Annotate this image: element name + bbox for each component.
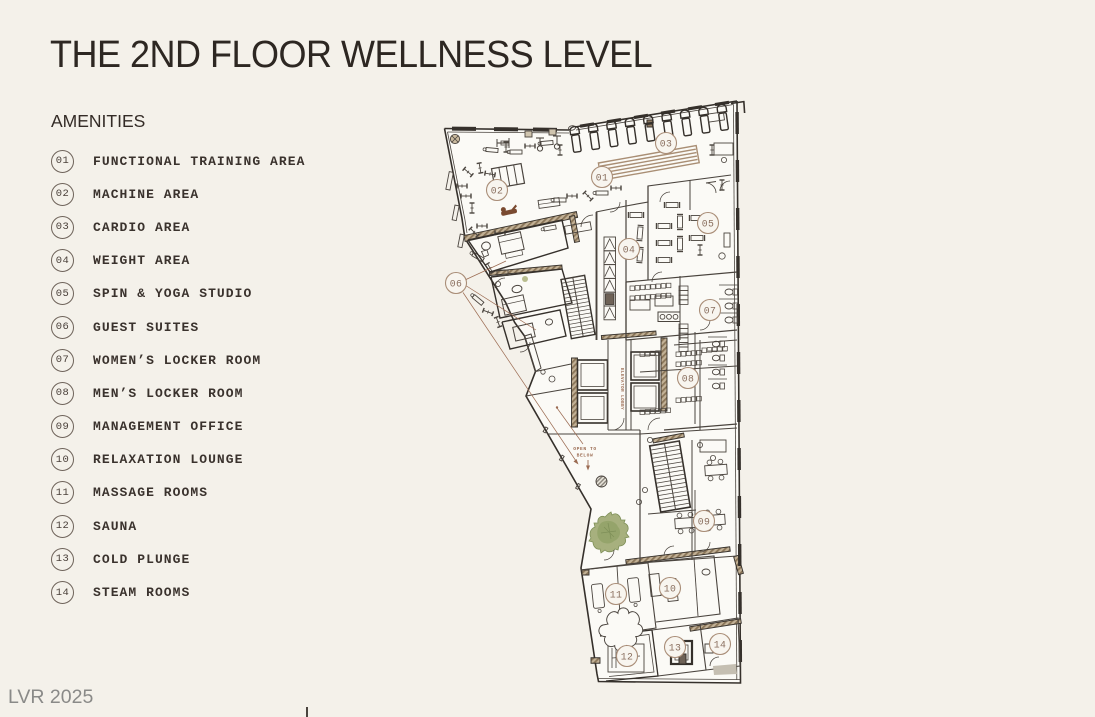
svg-text:04: 04 [623,244,636,255]
svg-text:03: 03 [660,138,673,149]
svg-text:13: 13 [669,642,682,653]
svg-text:BELOW: BELOW [577,453,594,459]
svg-text:10: 10 [664,583,677,594]
svg-text:07: 07 [704,305,717,316]
svg-text:06: 06 [450,278,463,289]
svg-text:05: 05 [702,218,715,229]
svg-text:09: 09 [698,516,711,527]
svg-text:12: 12 [621,651,634,662]
svg-text:14: 14 [714,639,727,650]
svg-text:02: 02 [491,185,504,196]
svg-text:ELEVATOR LOBBY: ELEVATOR LOBBY [619,368,623,410]
svg-text:08: 08 [682,373,695,384]
svg-text:OPEN TO: OPEN TO [573,446,597,452]
svg-text:01: 01 [596,172,609,183]
svg-text:11: 11 [610,589,623,600]
